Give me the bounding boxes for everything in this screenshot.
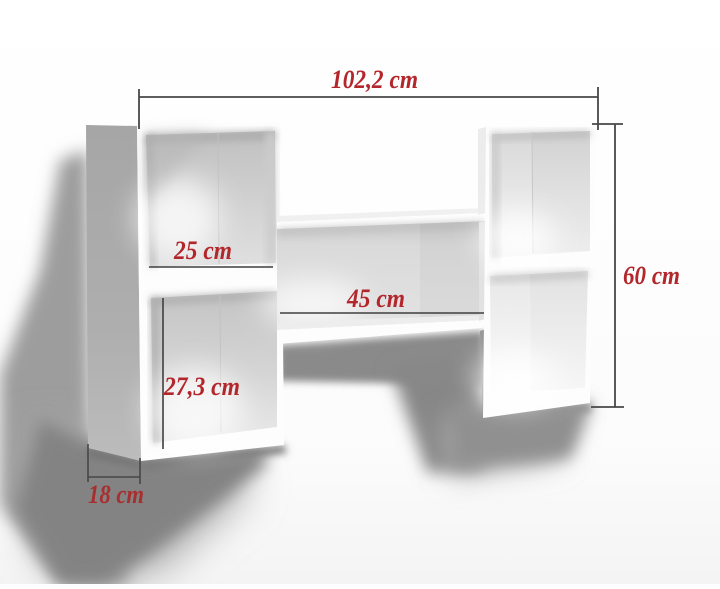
svg-text:25 cm: 25 cm — [173, 236, 232, 265]
svg-text:27,3 cm: 27,3 cm — [163, 372, 240, 401]
svg-text:60 cm: 60 cm — [623, 261, 680, 290]
svg-text:18 cm: 18 cm — [88, 480, 144, 509]
svg-text:45 cm: 45 cm — [346, 284, 405, 313]
svg-text:102,2 cm: 102,2 cm — [331, 65, 418, 94]
